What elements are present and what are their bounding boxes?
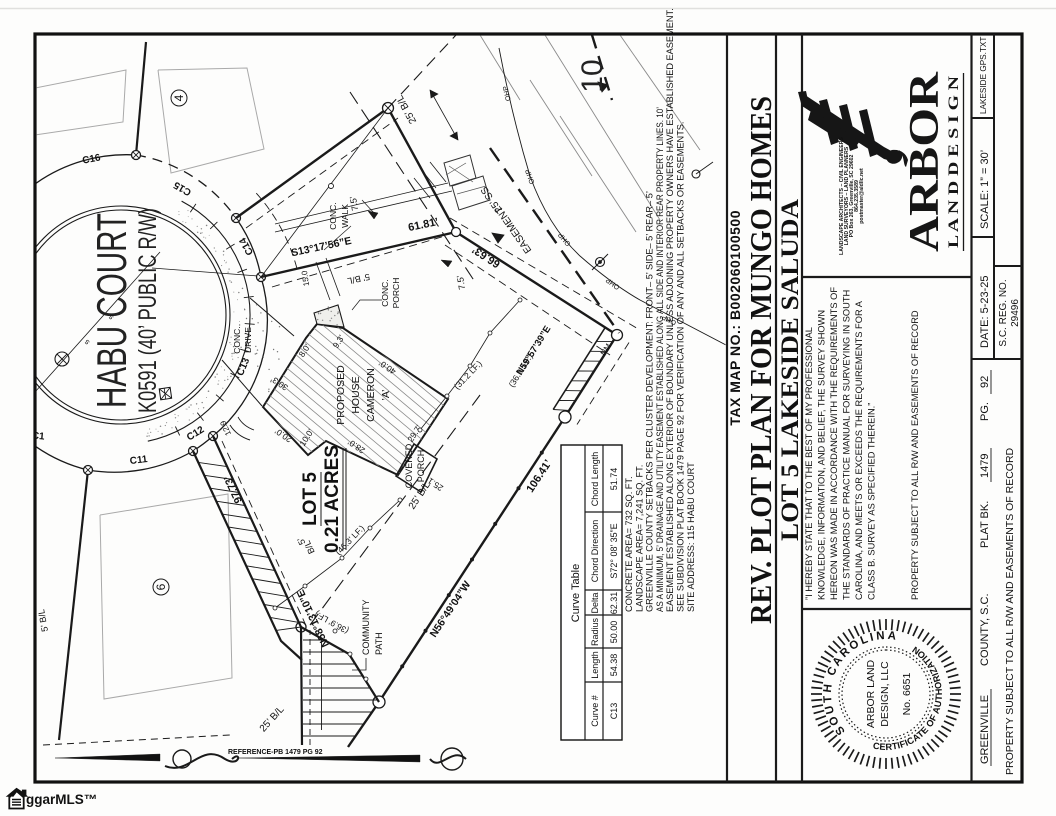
svg-text:CLASS B. SURVEY AS SPECIFIED T: CLASS B. SURVEY AS SPECIFIED THEREIN.” <box>867 403 877 600</box>
svg-text:PROPOSED: PROPOSED <box>335 365 347 425</box>
svg-text:66.63’: 66.63’ <box>470 243 502 270</box>
svg-text:CONC.: CONC. <box>380 279 390 306</box>
svg-text:REV. PLOT PLAN FOR MUNGO HOMES: REV. PLOT PLAN FOR MUNGO HOMES <box>743 96 778 624</box>
svg-text:OHP: OHP <box>502 85 512 102</box>
svg-text:PORCH: PORCH <box>391 278 401 309</box>
svg-text:SCALE: 1” = 30’: SCALE: 1” = 30’ <box>979 150 991 229</box>
svg-text:61.81’: 61.81’ <box>407 216 439 234</box>
svg-text:92: 92 <box>979 376 991 388</box>
svg-text:DRIVE: DRIVE <box>243 327 253 353</box>
svg-text:THE STANDARDS OF PRACTICE MANU: THE STANDARDS OF PRACTICE MANUAL FOR SUR… <box>842 290 852 600</box>
svg-text:PROPERTY SUBJECT TO ALL R/: PROPERTY SUBJECT TO ALL R/W AND EASEMENT… <box>1004 447 1016 775</box>
svg-text:PROPERTY SUBJECT TO ALL R/W AN: PROPERTY SUBJECT TO ALL R/W AND EASEMENT… <box>910 310 920 600</box>
svg-text:C15: C15 <box>172 179 194 198</box>
svg-text:C13: C13 <box>235 356 252 378</box>
svg-text:COVERED: COVERED <box>404 443 414 488</box>
svg-text:Curve Table: Curve Table <box>570 564 582 623</box>
svg-text:29496: 29496 <box>1010 299 1021 327</box>
svg-text:KNOWLEDGE, INFORMATION, AND BE: KNOWLEDGE, INFORMATION, AND BELIEF, THE … <box>817 310 827 600</box>
svg-text:54.38: 54.38 <box>609 654 619 677</box>
svg-text:CAMERON: CAMERON <box>365 368 377 422</box>
svg-text:DESIGN, LLC: DESIGN, LLC <box>879 661 891 727</box>
svg-text:ARBOR LAND: ARBOR LAND <box>865 659 877 728</box>
svg-text:25’ B/L: 25’ B/L <box>394 93 419 126</box>
svg-text:C12: C12 <box>185 424 207 443</box>
svg-text:S13°17’56”E: S13°17’56”E <box>290 235 353 260</box>
svg-text:SEE SUBDIVISION PLAT BOOK 1479: SEE SUBDIVISION PLAT BOOK 1479 PAGE 92 F… <box>676 122 686 613</box>
svg-text:CAROLINA, AND MEETS OR EXCEEDS: CAROLINA, AND MEETS OR EXCEEDS THE REQUI… <box>854 300 864 600</box>
svg-text:N56°49’04”W: N56°49’04”W <box>428 579 474 640</box>
svg-text:CONCRETE AREA= 732 SQ. FT.: CONCRETE AREA= 732 SQ. FT. <box>624 476 634 612</box>
svg-text:9.3’: 9.3’ <box>331 333 347 350</box>
svg-text:LANDSCAPE AREA= 7,241 SQ. FT.: LANDSCAPE AREA= 7,241 SQ. FT. <box>634 465 644 612</box>
svg-text:LOT 5 LAKESIDE SALUDA: LOT 5 LAKESIDE SALUDA <box>777 199 804 541</box>
svg-text:7.5’: 7.5’ <box>455 275 467 291</box>
svg-text:106.41’: 106.41’ <box>524 458 554 495</box>
svg-text:Curve #: Curve # <box>590 695 600 727</box>
svg-text:HOUSE: HOUSE <box>350 376 362 413</box>
svg-text:CONC.: CONC. <box>232 326 242 353</box>
svg-text:7.5’: 7.5’ <box>348 196 360 212</box>
svg-text:50.00: 50.00 <box>609 621 619 644</box>
svg-text:40.0’: 40.0’ <box>377 358 398 377</box>
svg-text:5’ B/L: 5’ B/L <box>346 272 370 286</box>
svg-text:OHP: OHP <box>525 168 537 185</box>
svg-text:PORCH: PORCH <box>416 450 426 483</box>
svg-text:C16: C16 <box>81 152 102 166</box>
svg-text:S.C. REG. NO.: S.C. REG. NO. <box>998 279 1009 346</box>
svg-text:PG.: PG. <box>979 402 991 421</box>
svg-text:EASEMENT ESTABLISHED ALONG EXT: EASEMENT ESTABLISHED ALONG EXTERIOR OF B… <box>665 8 675 612</box>
svg-text:Radius: Radius <box>590 617 600 646</box>
svg-text:PATH: PATH <box>374 632 384 655</box>
svg-text:LOT 5: LOT 5 <box>300 472 321 526</box>
svg-text:K0591 (40’ PUBLIC R/W): K0591 (40’ PUBLIC R/W) <box>134 208 162 413</box>
svg-text:No. 6651: No. 6651 <box>901 673 913 716</box>
svg-text:AS A MINIMUM, 5’ DRAINAGE AND: AS A MINIMUM, 5’ DRAINAGE AND UTILITY EA… <box>655 107 665 612</box>
svg-text:(36.9’ LF.): (36.9’ LF.) <box>506 352 534 389</box>
svg-text:Chord Length: Chord Length <box>590 452 600 507</box>
svg-text:62.31: 62.31 <box>609 592 619 615</box>
svg-text:WALK: WALK <box>340 204 350 228</box>
svg-text:HABU COURT: HABU COURT <box>88 213 135 408</box>
svg-text:PLAT BK.: PLAT BK. <box>979 501 991 548</box>
svg-text:COUNTY, S.C.: COUNTY, S.C. <box>979 593 991 666</box>
svg-text:S72° 08’ 35”E: S72° 08’ 35”E <box>609 523 619 578</box>
svg-text:12.9: 12.9 <box>218 419 233 437</box>
svg-text:30.3’: 30.3’ <box>269 374 290 393</box>
svg-text:GREENVILLE COUNTY SETBACKS PER: GREENVILLE COUNTY SETBACKS PER CLUSTER D… <box>645 191 655 612</box>
svg-text:COMMUNITY: COMMUNITY <box>361 600 371 656</box>
svg-text:10.0’: 10.0’ <box>297 427 315 448</box>
svg-text:97.73’: 97.73’ <box>222 473 245 505</box>
svg-text:15.0: 15.0 <box>300 269 311 286</box>
svg-text:(31.2 LF.): (31.2 LF.) <box>452 358 484 391</box>
svg-text:L A N D D E S I G N: L A N D D E S I G N <box>946 75 962 248</box>
svg-text:Chord Direction: Chord Direction <box>590 520 600 583</box>
svg-text:6: 6 <box>154 583 168 590</box>
svg-text:Length: Length <box>590 651 600 679</box>
svg-text:1479: 1479 <box>979 454 991 478</box>
svg-text:ARBOR: ARBOR <box>902 71 948 252</box>
svg-text:28.0’: 28.0’ <box>346 437 367 456</box>
svg-text:0.21 ACRES: 0.21 ACRES <box>322 445 343 553</box>
svg-text:HEREON WAS MADE IN ACCORDANCE: HEREON WAS MADE IN ACCORDANCE WITH THE R… <box>829 287 839 600</box>
svg-text:GREENVILLE: GREENVILLE <box>979 695 991 764</box>
svg-text:CONC.: CONC. <box>328 202 338 229</box>
svg-text:C14: C14 <box>237 235 256 257</box>
svg-text:10: 10 <box>576 59 609 92</box>
svg-text:postmaster@aldllc.net: postmaster@aldllc.net <box>859 168 865 224</box>
svg-text:4: 4 <box>172 94 186 101</box>
svg-text:DATE: 5-23-25: DATE: 5-23-25 <box>979 275 991 348</box>
svg-text:SITE ADDRESS: 115 HABU COURT: SITE ADDRESS: 115 HABU COURT <box>686 462 696 612</box>
svg-text:”I HEREBY STATE THAT TO THE BE: ”I HEREBY STATE THAT TO THE BEST OF MY P… <box>804 327 814 600</box>
svg-text:C11: C11 <box>129 454 148 467</box>
svg-text:51.74: 51.74 <box>609 468 619 491</box>
svg-text:5’ B/L: 5’ B/L <box>36 608 50 632</box>
svg-text:25’ B/L: 25’ B/L <box>258 704 287 735</box>
svg-text:C13: C13 <box>609 703 619 720</box>
svg-text:REFERENCE-PB 1479 PG 92: REFERENCE-PB 1479 PG 92 <box>228 749 323 756</box>
svg-text:Delta: Delta <box>590 592 600 613</box>
svg-text:TAX MAP NO.: B002060100500: TAX MAP NO.: B002060100500 <box>727 210 743 426</box>
svg-text:’A’: ’A’ <box>380 390 392 401</box>
svg-text:LAKESIDE GPS.TXT: LAKESIDE GPS.TXT <box>979 37 988 114</box>
